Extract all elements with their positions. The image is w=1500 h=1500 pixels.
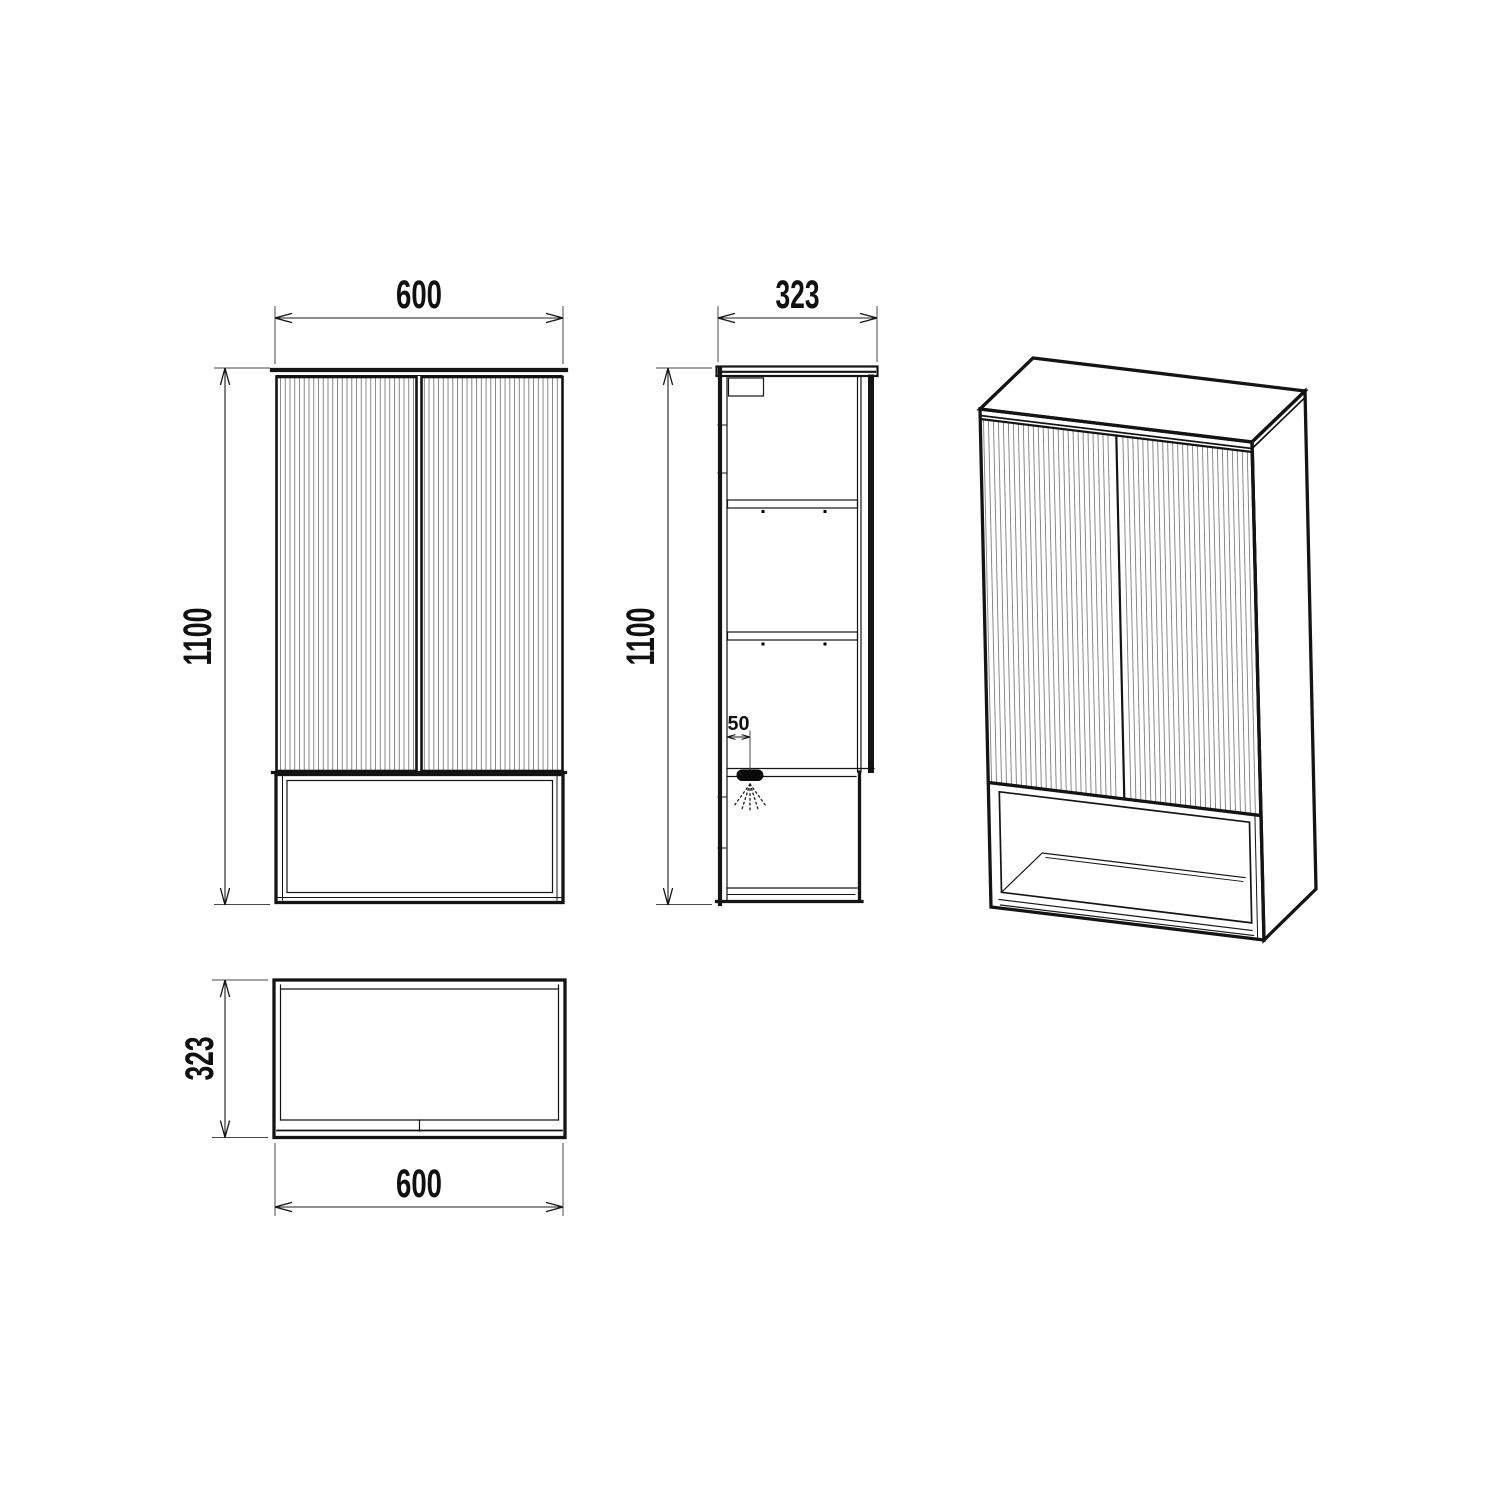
wall-mount-bracket [729, 378, 764, 396]
iso-open-niche [999, 792, 1258, 937]
flute-line [1183, 444, 1191, 808]
shelf-lower [728, 632, 858, 646]
dimension-top-depth: 323 [178, 980, 268, 1138]
side-height-label: 1100 [619, 608, 663, 666]
top-depth-label: 323 [178, 1037, 222, 1081]
flute-line [1068, 430, 1076, 794]
flute-line [1237, 450, 1245, 814]
flute-line [1188, 444, 1196, 807]
light-rays-icon [734, 784, 766, 811]
flute-line [1063, 429, 1071, 793]
front-width-label: 600 [396, 273, 442, 317]
dimension-front-width: 600 [275, 273, 563, 364]
line [1255, 815, 1258, 937]
flute-line [1073, 430, 1081, 793]
flute-line [1003, 422, 1011, 785]
flute-line [1202, 446, 1210, 810]
dimension-side-height: 1100 [619, 368, 712, 905]
left-door-flutes [281, 378, 414, 771]
top-view: 323 600 [178, 980, 565, 1216]
shelf-pin [762, 510, 765, 513]
flute-line [1048, 427, 1056, 791]
line [999, 900, 1252, 931]
flute-line [1227, 449, 1235, 813]
flute-line [1232, 450, 1240, 814]
flute-line [1053, 428, 1061, 792]
flute-line [1108, 434, 1116, 798]
left-door [277, 377, 417, 771]
flute-line [1143, 439, 1151, 803]
shelf [728, 500, 858, 508]
front-view: 600 1100 [176, 273, 566, 905]
flute-line [1133, 438, 1141, 802]
flute-line [988, 420, 996, 783]
flute-line [1212, 447, 1220, 811]
flute-line [1088, 432, 1096, 795]
open-niche [276, 775, 563, 903]
flute-line [1098, 433, 1106, 797]
right-door-flutes [424, 378, 557, 771]
flute-line [1033, 425, 1041, 789]
dimension-front-height: 1100 [176, 368, 270, 905]
flute-line [1013, 423, 1021, 787]
flute-line [1138, 438, 1146, 801]
flute-line [1217, 448, 1225, 812]
niche-floor [1002, 853, 1246, 892]
flute-line [1043, 427, 1051, 791]
flute-line [1078, 431, 1086, 795]
flute-line [1207, 447, 1215, 810]
dimension-light-offset: 50 [727, 713, 750, 771]
line [1001, 905, 1254, 936]
flute-line [1178, 443, 1186, 807]
light-offset-label: 50 [728, 713, 750, 735]
iso-top-panel-side-edge [1252, 398, 1304, 449]
flute-line [1158, 441, 1166, 804]
side-depth-label: 323 [776, 273, 820, 317]
flute-line [1018, 424, 1026, 788]
shelf-upper [728, 500, 858, 513]
top-width-label: 600 [396, 1162, 442, 1206]
flute-line [1103, 434, 1111, 798]
iso-door-divider [1116, 436, 1124, 800]
flute-line [1153, 440, 1161, 804]
flute-line [1193, 445, 1201, 809]
isometric-view [980, 358, 1316, 940]
technical-drawing-page: 600 1100 [0, 0, 1500, 1500]
side-view: 50 323 1100 [619, 273, 878, 905]
flute-line [993, 421, 1001, 785]
flute-line [998, 421, 1006, 785]
flute-line [1093, 433, 1101, 797]
line [1046, 858, 1243, 882]
flute-line [1008, 422, 1016, 786]
top-view-outline [274, 980, 565, 1138]
flute-line [1083, 431, 1091, 795]
niche-outer-frame [276, 775, 563, 903]
right-door [422, 377, 563, 771]
dimension-top-width: 600 [275, 1143, 563, 1216]
front-height-label: 1100 [176, 608, 220, 666]
led-light-icon [737, 770, 764, 782]
flute-line [1028, 425, 1036, 789]
shelf [728, 632, 858, 640]
flute-line [1198, 445, 1206, 809]
flute-line [1168, 442, 1176, 806]
flute-line [1163, 441, 1171, 805]
iso-door-edge [1254, 451, 1265, 936]
shelf-pin [824, 643, 827, 646]
flute-line [1242, 451, 1250, 815]
flute-line [1023, 424, 1031, 787]
flute-line [1128, 437, 1136, 801]
drawing-canvas: 600 1100 [0, 0, 1500, 1500]
shelf-pin [762, 643, 765, 646]
iso-right-face [1252, 391, 1316, 940]
flute-line [1038, 426, 1046, 789]
flute-line [1148, 439, 1156, 803]
flute-line [1058, 428, 1066, 792]
niche-inner-frame [287, 781, 553, 893]
flute-line [1173, 442, 1181, 805]
shelf-pin [824, 510, 827, 513]
flute-line [1222, 448, 1230, 811]
dimension-side-depth: 323 [718, 273, 877, 362]
